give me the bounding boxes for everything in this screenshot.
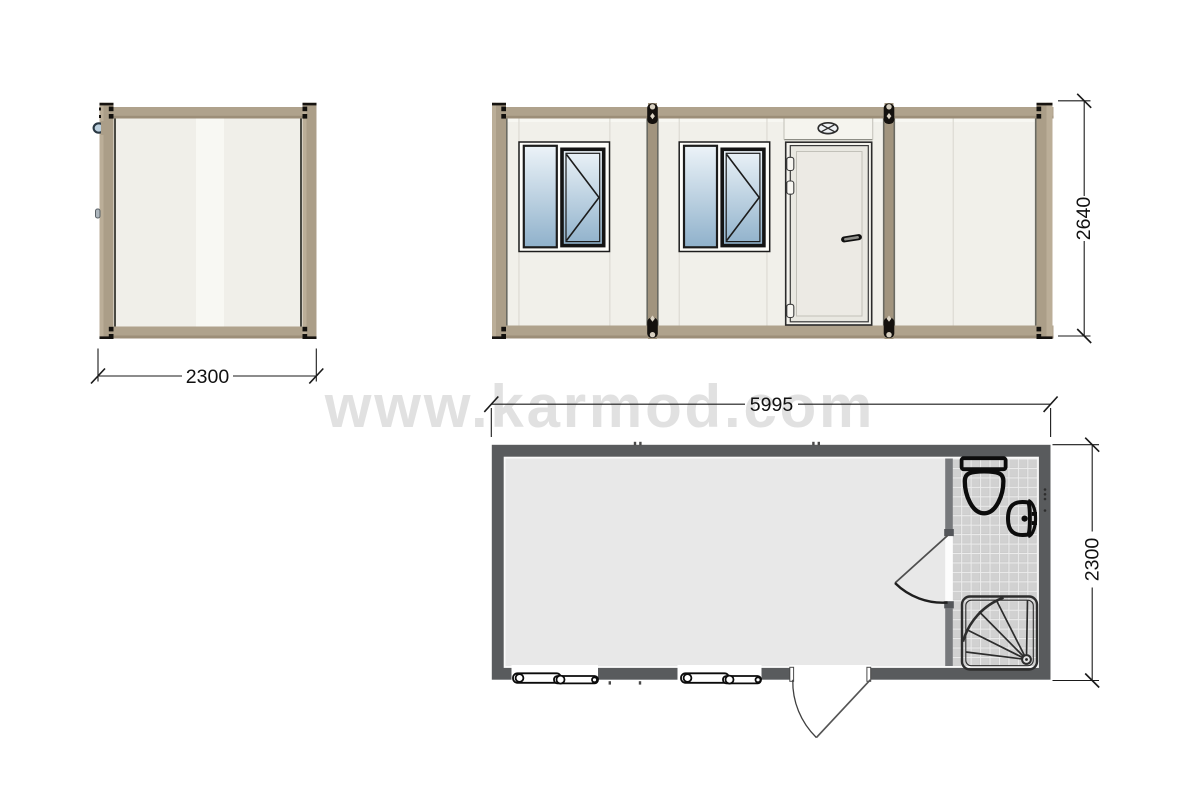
svg-text:5995: 5995	[750, 394, 794, 416]
svg-text:2300: 2300	[186, 366, 230, 388]
svg-text:2640: 2640	[1073, 197, 1095, 241]
svg-text:2300: 2300	[1081, 538, 1103, 582]
